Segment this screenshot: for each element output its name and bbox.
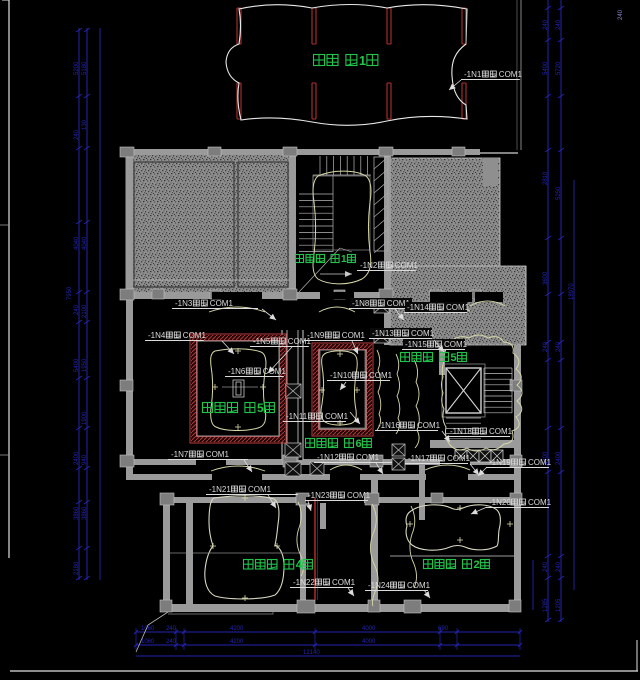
svg-text:COM1: COM1 — [347, 491, 371, 500]
svg-text:-1N15: -1N15 — [405, 340, 427, 349]
svg-text:240: 240 — [166, 626, 177, 632]
svg-text:5180: 5180 — [82, 61, 88, 75]
svg-text:5: 5 — [257, 401, 264, 415]
svg-text:5720: 5720 — [556, 61, 562, 75]
svg-text:COM1: COM1 — [356, 453, 380, 462]
svg-text:1900: 1900 — [82, 411, 88, 425]
svg-text:18970: 18970 — [569, 283, 575, 300]
svg-text:-1N2: -1N2 — [360, 261, 378, 270]
svg-text:4000: 4000 — [362, 626, 376, 632]
svg-text:2400: 2400 — [556, 451, 562, 465]
svg-text:240: 240 — [166, 639, 177, 645]
svg-text:COM1: COM1 — [342, 331, 366, 340]
svg-text:-1N12: -1N12 — [317, 453, 339, 462]
svg-text:COM1: COM1 — [528, 458, 552, 467]
svg-text:-1N13: -1N13 — [372, 329, 394, 338]
svg-text:COM1: COM1 — [489, 427, 513, 436]
svg-text:1285: 1285 — [543, 598, 549, 612]
svg-text:1: 1 — [341, 254, 347, 265]
svg-text:COM1: COM1 — [417, 421, 441, 430]
svg-text:-1N19: -1N19 — [489, 458, 511, 467]
svg-text:COM1: COM1 — [444, 340, 468, 349]
svg-text:-1N11: -1N11 — [286, 412, 308, 421]
svg-text:COM1: COM1 — [210, 299, 234, 308]
svg-text:5250: 5250 — [556, 186, 562, 200]
svg-text:1060: 1060 — [141, 626, 155, 632]
svg-text:240: 240 — [556, 561, 562, 572]
svg-text:COM1: COM1 — [332, 578, 356, 587]
svg-text:COM1: COM1 — [325, 412, 349, 421]
svg-text:1950: 1950 — [82, 358, 88, 372]
svg-text:690: 690 — [438, 626, 449, 632]
svg-text:-1N23: -1N23 — [308, 491, 330, 500]
svg-text:4200: 4200 — [230, 639, 244, 645]
svg-text:2: 2 — [474, 559, 480, 571]
svg-text:4200: 4200 — [230, 626, 244, 632]
svg-text:COM1: COM1 — [407, 581, 431, 590]
svg-text:2100: 2100 — [82, 304, 88, 318]
svg-text:COM1: COM1 — [447, 454, 471, 463]
svg-text:240: 240 — [556, 19, 562, 30]
svg-text:240: 240 — [74, 129, 80, 140]
svg-text:6: 6 — [356, 438, 362, 450]
svg-text:COM1: COM1 — [206, 450, 230, 459]
svg-text:4040: 4040 — [82, 236, 88, 250]
svg-text:-1N17: -1N17 — [408, 454, 430, 463]
svg-text:COM1: COM1 — [411, 329, 435, 338]
svg-text:3600: 3600 — [543, 271, 549, 285]
svg-text:COM1: COM1 — [248, 485, 272, 494]
svg-text:COM1: COM1 — [499, 70, 523, 79]
svg-text:-1N1: -1N1 — [464, 70, 482, 79]
svg-text:COM1: COM1 — [369, 371, 393, 380]
svg-text:1205: 1205 — [556, 598, 562, 612]
svg-text:5400: 5400 — [74, 358, 80, 372]
svg-text:-1N9: -1N9 — [307, 331, 325, 340]
svg-text:240: 240 — [543, 341, 549, 352]
svg-text:-1N18: -1N18 — [450, 427, 472, 436]
svg-text:4040: 4040 — [74, 236, 80, 250]
svg-text:-1N4: -1N4 — [148, 331, 166, 340]
svg-text:COM1: COM1 — [446, 303, 470, 312]
svg-text:5200: 5200 — [74, 61, 80, 75]
svg-text:240: 240 — [543, 561, 549, 572]
svg-text:-1N10: -1N10 — [330, 371, 352, 380]
svg-text:5: 5 — [451, 352, 457, 364]
svg-text:240: 240 — [618, 9, 624, 20]
svg-text:12140: 12140 — [303, 650, 320, 656]
svg-text:4000: 4000 — [362, 639, 376, 645]
svg-text:1: 1 — [359, 53, 366, 68]
svg-text:-1N22: -1N22 — [293, 578, 315, 587]
svg-text:-1N5: -1N5 — [253, 337, 271, 346]
svg-text:-1N21: -1N21 — [209, 485, 231, 494]
svg-text:-1N20: -1N20 — [489, 498, 511, 507]
svg-text:3860: 3860 — [82, 506, 88, 520]
svg-text:940: 940 — [82, 454, 88, 465]
svg-text:2180: 2180 — [74, 561, 80, 575]
svg-text:COM1: COM1 — [395, 261, 419, 270]
svg-text:7950: 7950 — [67, 286, 73, 300]
svg-text:COM1: COM1 — [528, 498, 552, 507]
svg-text:-1N6: -1N6 — [228, 367, 246, 376]
svg-text:240: 240 — [74, 304, 80, 315]
svg-text:130: 130 — [82, 119, 88, 130]
svg-text:4: 4 — [296, 560, 303, 572]
svg-text:-1N24: -1N24 — [368, 581, 390, 590]
svg-text:5400: 5400 — [543, 61, 549, 75]
svg-text:-1N8: -1N8 — [352, 299, 370, 308]
svg-text:1060: 1060 — [141, 639, 155, 645]
svg-text:3860: 3860 — [74, 506, 80, 520]
svg-text:-1N7: -1N7 — [171, 450, 189, 459]
svg-text:COM1: COM1 — [183, 331, 207, 340]
svg-text:-1N3: -1N3 — [175, 299, 193, 308]
svg-text:2810: 2810 — [543, 171, 549, 185]
svg-text:240: 240 — [543, 19, 549, 30]
svg-text:-1N14: -1N14 — [407, 303, 429, 312]
svg-text:240: 240 — [556, 341, 562, 352]
svg-text:COM1: COM1 — [263, 367, 287, 376]
svg-text:-1N16: -1N16 — [378, 421, 400, 430]
svg-text:2400: 2400 — [74, 451, 80, 465]
